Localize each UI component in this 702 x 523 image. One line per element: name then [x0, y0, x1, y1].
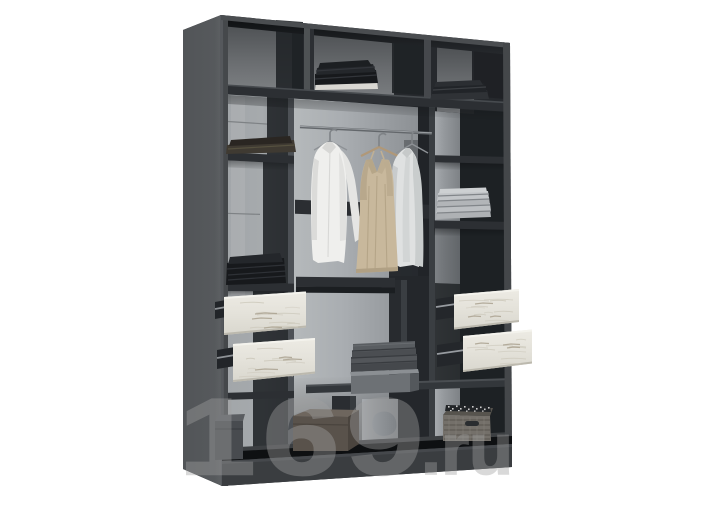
svg-text:169: 169 [179, 377, 431, 498]
svg-text:.ru: .ru [421, 410, 513, 490]
